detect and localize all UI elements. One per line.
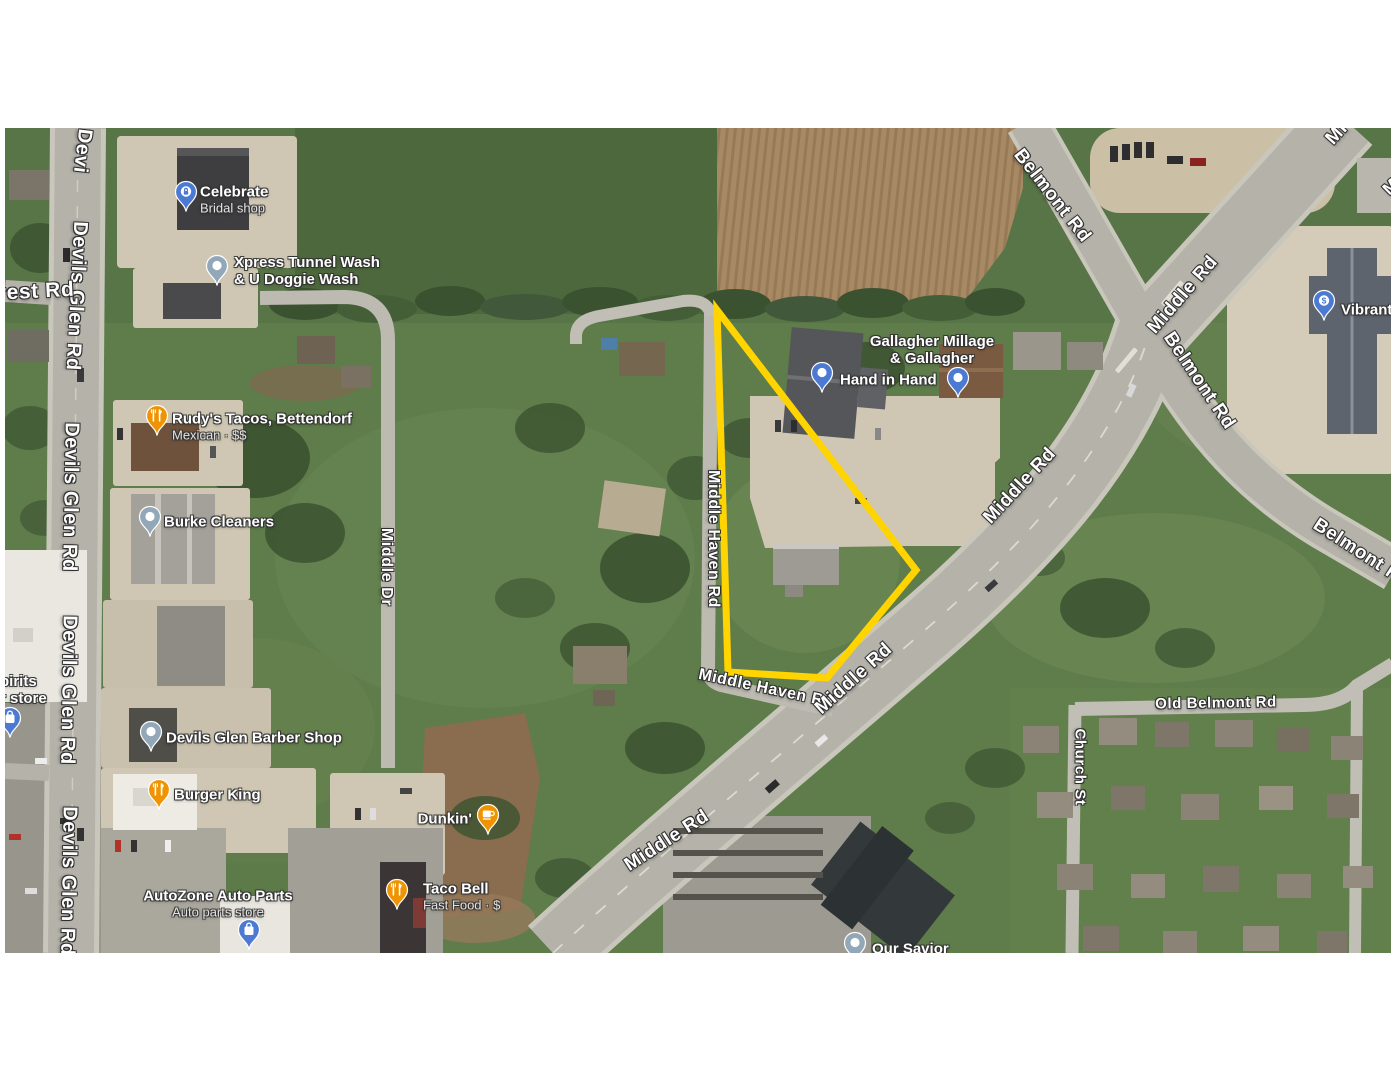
poi-label-vibrant-credit-union-line-1: Vibrant Cr <box>1341 302 1391 319</box>
poi-label-vibrant-credit-union[interactable]: Vibrant Cr <box>1341 302 1391 319</box>
map-canvas[interactable]: DeviDevils Glen Rdcrest RdDevils Glen Rd… <box>5 128 1391 953</box>
poi-marker-devils-glen-barber-shop-generic-icon[interactable] <box>139 720 163 753</box>
poi-label-liquor-store-partial-line-2: r store <box>5 690 47 707</box>
road-label-middle-dr: Middle Dr <box>377 528 395 606</box>
poi-label-liquor-store-partial[interactable]: piritsr store <box>5 673 47 707</box>
poi-label-dunkin[interactable]: Dunkin' <box>418 811 472 828</box>
road-label-mi: Mi <box>1321 128 1352 150</box>
road-label-devi: Devi <box>68 128 96 175</box>
road-label-middle-rd: Middle Rd <box>811 639 897 720</box>
map-labels-layer: DeviDevils Glen Rdcrest RdDevils Glen Rd… <box>5 128 1391 953</box>
poi-marker-xpress-tunnel-wash-generic-icon[interactable] <box>205 254 229 287</box>
poi-label-hand-in-hand-line-1: Hand in Hand <box>840 372 937 389</box>
poi-label-hand-in-hand[interactable]: Hand in Hand <box>840 372 937 389</box>
poi-marker-liquor-store-partial-bag-icon[interactable] <box>5 706 22 739</box>
poi-label-burger-king[interactable]: Burger King <box>174 787 261 804</box>
poi-label-rudys-tacos[interactable]: Rudy's Tacos, BettendorfMexican · $$ <box>172 411 352 444</box>
poi-marker-gallagher-millage-generic-icon[interactable] <box>946 366 970 399</box>
road-label-devils-glen-rd: Devils Glen Rd <box>57 422 83 572</box>
poi-label-taco-bell-line-2: Fast Food · $ <box>423 898 500 914</box>
road-label-middle-rd: Middle Rd <box>979 443 1061 528</box>
poi-label-gallagher-millage-line-2: & Gallagher <box>870 350 994 367</box>
road-label-middle-rd: Middle Rd <box>1143 251 1223 338</box>
road-label-belmont-rd: Belmont Rd <box>1158 328 1239 434</box>
poi-label-rudys-tacos-line-2: Mexican · $$ <box>172 428 352 444</box>
poi-label-devils-glen-barber-shop-line-1: Devils Glen Barber Shop <box>166 730 342 747</box>
poi-label-gallagher-millage[interactable]: Gallagher Millage& Gallagher <box>870 333 994 367</box>
poi-label-autozone-line-1: AutoZone Auto Parts <box>143 888 292 905</box>
poi-label-taco-bell-line-1: Taco Bell <box>423 881 500 898</box>
poi-label-our-savior-line-1: Our Savior <box>872 941 949 954</box>
poi-label-rudys-tacos-line-1: Rudy's Tacos, Bettendorf <box>172 411 352 428</box>
road-label-belmont-rd: Belmont Rd <box>1009 145 1096 247</box>
poi-marker-autozone-bag-icon[interactable] <box>237 918 261 951</box>
poi-marker-celebrate-bridal-shop-lock-icon[interactable] <box>174 180 198 213</box>
screenshot-root: DeviDevils Glen Rdcrest RdDevils Glen Rd… <box>0 0 1397 1080</box>
poi-label-burke-cleaners-line-1: Burke Cleaners <box>164 514 274 531</box>
poi-label-xpress-tunnel-wash-line-2: & U Doggie Wash <box>234 271 380 288</box>
svg-text:$: $ <box>1322 295 1327 305</box>
road-label-devils-glen-rd: Devils Glen Rd <box>55 806 81 953</box>
road-label-middle-rd: Middle Rd <box>621 806 714 877</box>
road-label-belmont-rd: Belmont Rd <box>1309 514 1391 594</box>
poi-label-dunkin-line-1: Dunkin' <box>418 811 472 828</box>
poi-label-burger-king-line-1: Burger King <box>174 787 261 804</box>
poi-marker-taco-bell-restaurant-icon[interactable] <box>385 878 409 911</box>
road-label-middle-haven-rd: Middle Haven Rd <box>704 470 722 608</box>
poi-label-liquor-store-partial-line-1: pirits <box>5 673 47 690</box>
poi-label-our-savior[interactable]: Our Savior <box>872 941 949 954</box>
road-label-devils-glen-rd: Devils Glen Rd <box>55 615 81 765</box>
poi-marker-burke-cleaners-generic-icon[interactable] <box>138 505 162 538</box>
road-label-m: M <box>1379 175 1391 200</box>
poi-label-autozone-line-2: Auto parts store <box>143 905 292 921</box>
poi-marker-our-savior-generic-icon[interactable] <box>843 931 867 953</box>
poi-label-taco-bell[interactable]: Taco BellFast Food · $ <box>423 881 500 914</box>
poi-label-gallagher-millage-line-1: Gallagher Millage <box>870 333 994 350</box>
poi-label-celebrate-bridal-shop-line-2: Bridal shop <box>200 201 268 217</box>
road-label-crest-rd: crest Rd <box>5 278 75 307</box>
poi-marker-dunkin-coffee-icon[interactable] <box>476 803 500 836</box>
poi-label-celebrate-bridal-shop[interactable]: CelebrateBridal shop <box>200 184 268 217</box>
road-label-old-belmont-rd: Old Belmont Rd <box>1155 693 1277 712</box>
poi-label-autozone[interactable]: AutoZone Auto PartsAuto parts store <box>143 888 292 921</box>
poi-label-xpress-tunnel-wash-line-1: Xpress Tunnel Wash <box>234 254 380 271</box>
poi-marker-burger-king-restaurant-icon[interactable] <box>147 778 171 811</box>
poi-label-xpress-tunnel-wash[interactable]: Xpress Tunnel Wash& U Doggie Wash <box>234 254 380 288</box>
poi-marker-rudys-tacos-restaurant-icon[interactable] <box>145 404 169 437</box>
poi-marker-hand-in-hand-generic-icon[interactable] <box>810 361 834 394</box>
poi-label-burke-cleaners[interactable]: Burke Cleaners <box>164 514 274 531</box>
road-label-church-st: Church St <box>1072 728 1089 805</box>
poi-label-celebrate-bridal-shop-line-1: Celebrate <box>200 184 268 201</box>
poi-marker-vibrant-credit-union-dollar-icon[interactable]: $ <box>1312 289 1336 322</box>
poi-label-devils-glen-barber-shop[interactable]: Devils Glen Barber Shop <box>166 730 342 747</box>
